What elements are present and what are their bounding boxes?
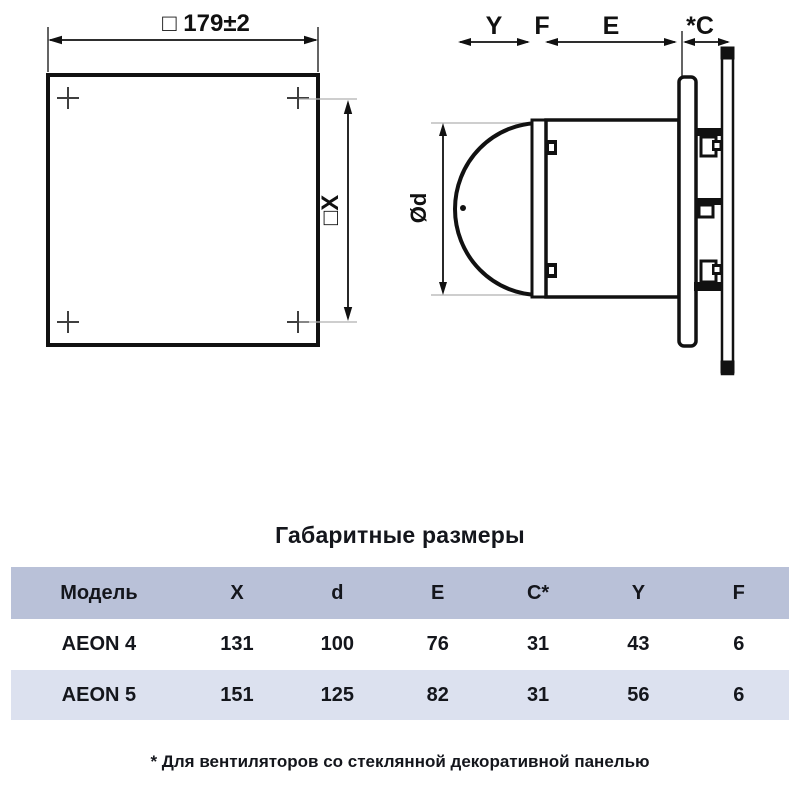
value-cell: 56 bbox=[588, 684, 688, 707]
dim-c-label: *C bbox=[686, 12, 714, 40]
dimensions-table: Модель X d E C* Y F AEON 4 131 100 76 31… bbox=[11, 567, 789, 720]
panel-width-dimension-label: □ 179±2 bbox=[162, 10, 250, 37]
col-header-c: C* bbox=[488, 582, 588, 605]
dim-f-label: F bbox=[534, 12, 549, 40]
connector-bracket-middle bbox=[696, 198, 722, 217]
front-view-drawing: □ 179±2 □X bbox=[48, 10, 357, 345]
col-header-y: Y bbox=[588, 582, 688, 605]
dim-diameter-label: Ød bbox=[406, 193, 431, 224]
front-panel-strip bbox=[532, 120, 546, 297]
value-cell: 82 bbox=[388, 684, 488, 707]
footnote: * Для вентиляторов со стеклянной декорат… bbox=[0, 752, 800, 772]
wall-panel-bottom-cap bbox=[721, 361, 735, 374]
col-header-d: d bbox=[287, 582, 387, 605]
value-cell: 76 bbox=[388, 633, 488, 656]
value-cell: 6 bbox=[689, 633, 789, 656]
fan-dome-outline bbox=[455, 123, 540, 295]
arrowhead-right-icon bbox=[664, 38, 677, 46]
table-row: AEON 4 131 100 76 31 43 6 bbox=[11, 619, 789, 670]
col-header-x: X bbox=[187, 582, 287, 605]
value-cell: 131 bbox=[187, 633, 287, 656]
table-header-row: Модель X d E C* Y F bbox=[11, 567, 789, 619]
col-header-f: F bbox=[689, 582, 789, 605]
value-cell: 6 bbox=[689, 684, 789, 707]
model-name-cell: AEON 4 bbox=[11, 633, 187, 656]
arrowhead-right-icon bbox=[517, 38, 530, 46]
arrowhead-right-icon bbox=[304, 36, 318, 44]
value-cell: 151 bbox=[187, 684, 287, 707]
arrowhead-left-icon bbox=[458, 38, 471, 46]
table-row: AEON 5 151 125 82 31 56 6 bbox=[11, 670, 789, 720]
dim-y-label: Y bbox=[486, 12, 503, 40]
arrowhead-right-icon bbox=[718, 38, 730, 46]
technical-drawings: □ 179±2 □X Y F E * bbox=[0, 0, 800, 390]
dome-dot bbox=[460, 205, 466, 211]
section-title: Габаритные размеры bbox=[0, 522, 800, 549]
value-cell: 43 bbox=[588, 633, 688, 656]
side-view-drawing: Y F E *C Ød bbox=[406, 12, 735, 374]
panel-height-dimension-label: □X bbox=[317, 195, 344, 226]
wall-panel-top-cap bbox=[721, 47, 735, 60]
value-cell: 31 bbox=[488, 684, 588, 707]
connector-bracket-bottom bbox=[694, 261, 722, 291]
col-header-e: E bbox=[388, 582, 488, 605]
body-clip-icon bbox=[546, 263, 557, 278]
arrowhead-down-icon bbox=[344, 307, 352, 321]
arrowhead-left-icon bbox=[48, 36, 62, 44]
dim-e-label: E bbox=[603, 12, 620, 40]
arrowhead-up-icon bbox=[344, 100, 352, 114]
arrowhead-down-icon bbox=[439, 282, 447, 295]
model-name-cell: AEON 5 bbox=[11, 684, 187, 707]
body-clip-icon bbox=[546, 140, 557, 155]
col-header-model: Модель bbox=[11, 582, 187, 605]
arrowhead-up-icon bbox=[439, 123, 447, 136]
fan-body-outline bbox=[546, 120, 679, 297]
value-cell: 125 bbox=[287, 684, 387, 707]
value-cell: 100 bbox=[287, 633, 387, 656]
value-cell: 31 bbox=[488, 633, 588, 656]
mounting-plate-outline bbox=[679, 77, 696, 346]
connector-bracket-top bbox=[696, 128, 722, 156]
wall-panel-outline bbox=[722, 48, 733, 374]
panel-outline bbox=[48, 75, 318, 345]
